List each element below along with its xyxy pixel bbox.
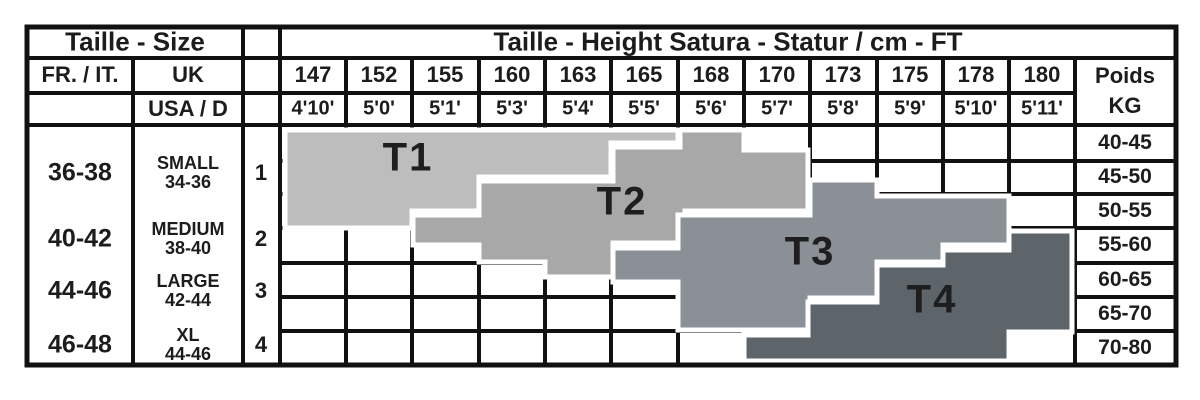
height-cm-col-5: 163 (560, 62, 597, 88)
size-chart: Taille - Size Taille - Height Satura - S… (0, 0, 1200, 400)
weight-row-3: 50-55 (1098, 199, 1152, 223)
height-cm-col-12: 180 (1024, 62, 1061, 88)
uk-size-4-name: XL (165, 326, 211, 345)
weight-row-4: 55-60 (1098, 233, 1152, 257)
usa-size-3: 3 (255, 278, 267, 304)
weight-row-5: 60-65 (1098, 268, 1152, 292)
height-cm-col-8: 170 (759, 62, 796, 88)
height-cm-col-2: 152 (361, 62, 398, 88)
uk-size-1-name: SMALL (157, 154, 219, 173)
uk-size-4: XL 44-46 (165, 326, 211, 364)
fr-it-size-1: 36-38 (48, 159, 112, 188)
usa-size-4: 4 (255, 332, 267, 358)
height-ft-col-10: 5'9' (894, 98, 926, 121)
height-cm-col-4: 160 (494, 62, 531, 88)
band-label-t1: T1 (383, 136, 434, 181)
usa-size-2: 2 (255, 226, 267, 252)
fr-it-size-4: 46-48 (48, 331, 112, 360)
height-cm-col-9: 173 (825, 62, 862, 88)
weight-row-2: 45-50 (1098, 165, 1152, 189)
weight-row-1: 40-45 (1098, 131, 1152, 155)
uk-size-3-range: 42-44 (157, 291, 220, 310)
weight-row-7: 70-80 (1098, 336, 1152, 360)
height-cm-col-7: 168 (693, 62, 730, 88)
usa-d-header: USA / D (148, 96, 228, 122)
height-cm-col-6: 165 (626, 62, 663, 88)
uk-size-2-range: 38-40 (152, 239, 225, 258)
height-ft-col-9: 5'8' (827, 98, 859, 121)
uk-size-1: SMALL 34-36 (157, 154, 219, 192)
height-ft-col-3: 5'1' (429, 98, 461, 121)
height-ft-col-7: 5'6' (695, 98, 727, 121)
weight-header: Poids (1095, 63, 1155, 89)
height-ft-col-1: 4'10' (292, 98, 335, 121)
height-ft-col-11: 5'10' (955, 98, 998, 121)
band-label-t3: T3 (785, 230, 836, 275)
uk-size-3-name: LARGE (157, 272, 220, 291)
band-label-t4: T4 (907, 278, 958, 323)
height-ft-col-8: 5'7' (761, 98, 793, 121)
fr-it-size-3: 44-46 (48, 277, 112, 306)
height-cm-col-11: 178 (958, 62, 995, 88)
uk-size-2: MEDIUM 38-40 (152, 220, 225, 258)
weight-unit: KG (1109, 93, 1142, 119)
height-title: Taille - Height Satura - Statur / cm - F… (493, 27, 962, 58)
uk-size-3: LARGE 42-44 (157, 272, 220, 310)
weight-row-6: 65-70 (1098, 302, 1152, 326)
uk-header: UK (172, 62, 204, 88)
height-ft-col-4: 5'3' (496, 98, 528, 121)
height-ft-col-6: 5'5' (628, 98, 660, 121)
band-label-t2: T2 (597, 180, 648, 225)
height-cm-col-3: 155 (427, 62, 464, 88)
uk-size-4-range: 44-46 (165, 345, 211, 364)
height-ft-col-12: 5'11' (1021, 98, 1063, 121)
height-ft-col-5: 5'4' (562, 98, 594, 121)
height-ft-col-2: 5'0' (363, 98, 395, 121)
fr-it-size-2: 40-42 (48, 225, 112, 254)
uk-size-1-range: 34-36 (157, 173, 219, 192)
fr-it-header: FR. / IT. (42, 62, 119, 88)
height-cm-col-10: 175 (892, 62, 929, 88)
size-title: Taille - Size (65, 27, 205, 58)
height-cm-col-1: 147 (295, 62, 332, 88)
usa-size-1: 1 (255, 160, 267, 186)
uk-size-2-name: MEDIUM (152, 220, 225, 239)
